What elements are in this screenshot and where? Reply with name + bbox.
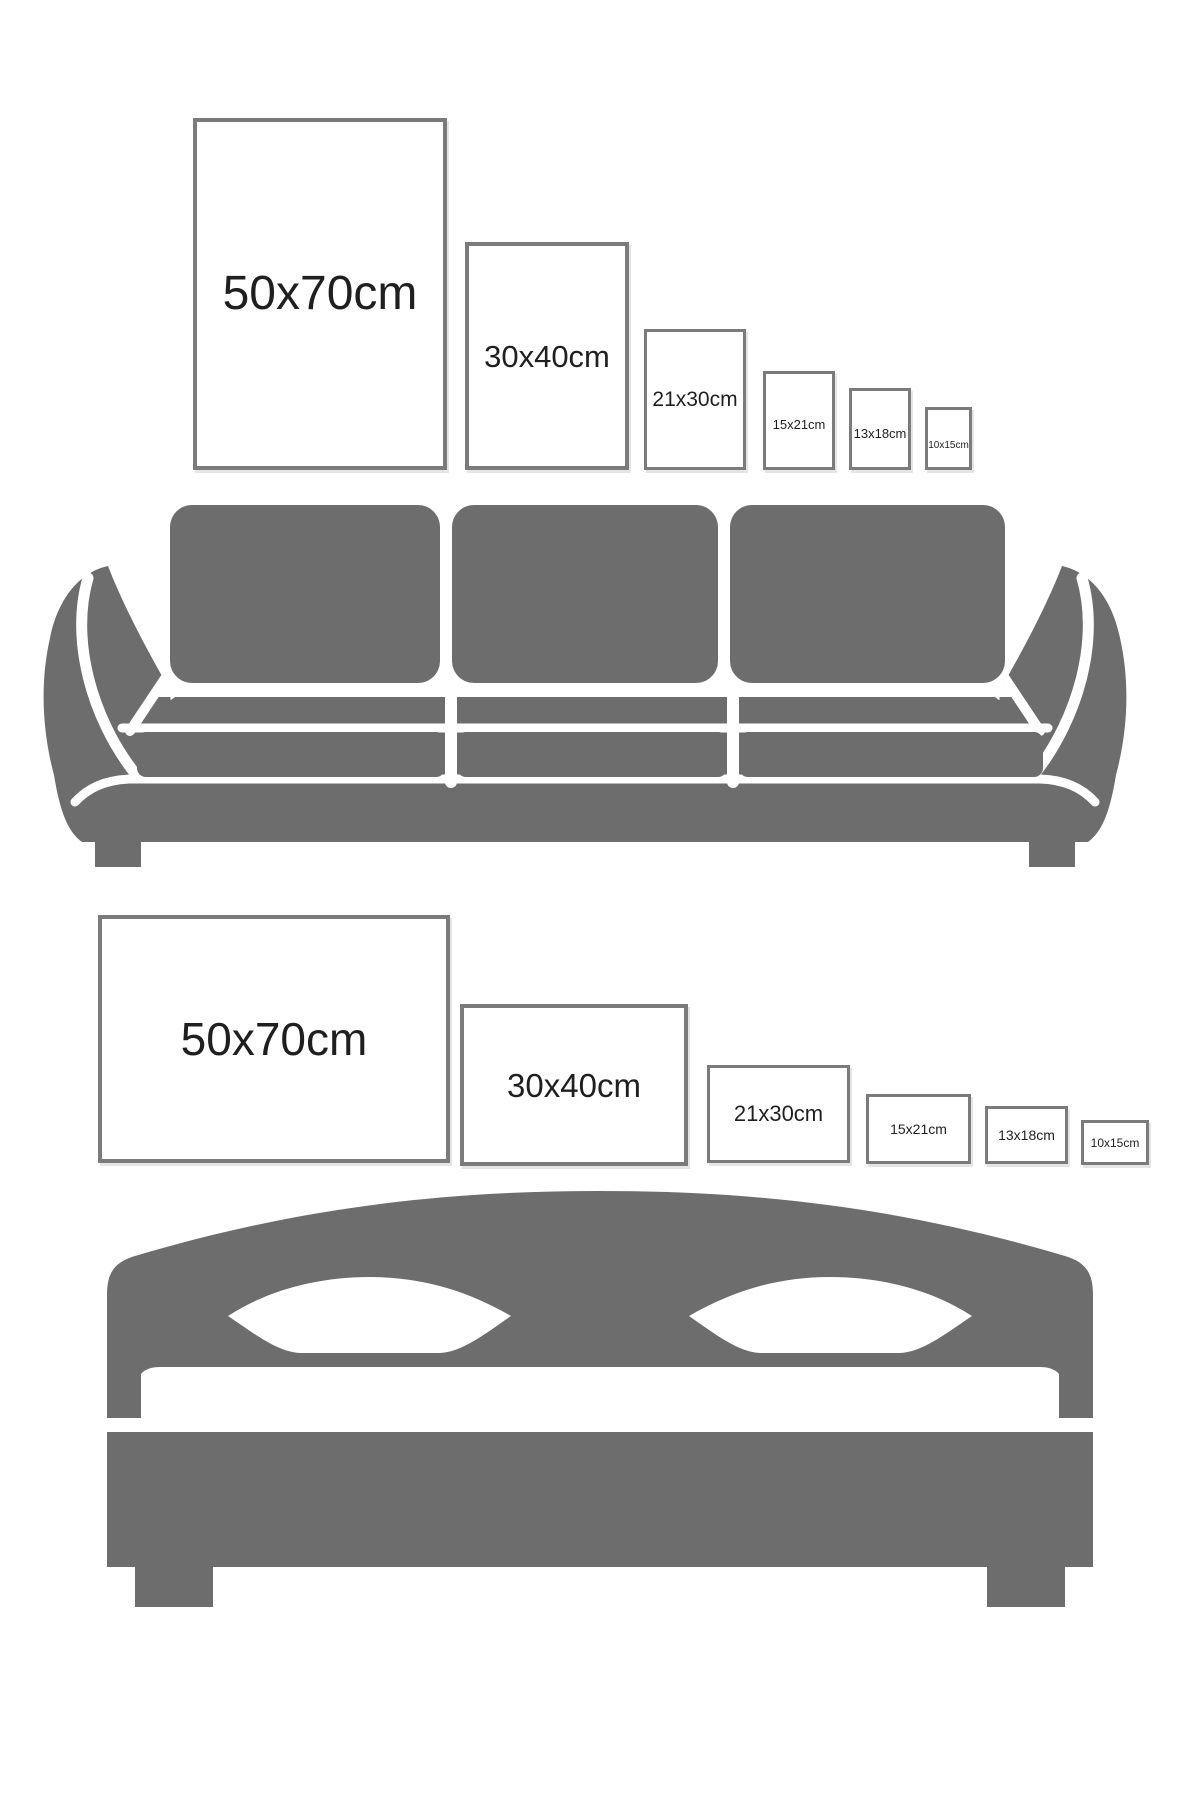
frame-label: 21x30cm	[734, 1103, 823, 1125]
frame-label: 50x70cm	[181, 1016, 368, 1062]
frame-label: 30x40cm	[484, 341, 610, 372]
frame-21x30-landscape: 21x30cm	[707, 1065, 850, 1163]
frame-label: 50x70cm	[223, 270, 418, 318]
frame-label: 13x18cm	[998, 1128, 1055, 1142]
frame-30x40-landscape: 30x40cm	[460, 1004, 688, 1166]
frame-label: 10x15cm	[1091, 1137, 1140, 1149]
frame-label: 15x21cm	[890, 1122, 947, 1136]
sofa-icon	[0, 440, 1200, 900]
frame-10x15-landscape: 10x15cm	[1081, 1120, 1149, 1165]
frame-label: 15x21cm	[773, 418, 826, 431]
frame-label: 13x18cm	[854, 427, 907, 440]
frame-15x21-landscape: 15x21cm	[866, 1094, 971, 1164]
size-guide-canvas: 50x70cm 30x40cm 21x30cm 15x21cm 13x18cm …	[0, 0, 1200, 1800]
bed-icon	[0, 1180, 1200, 1620]
frame-30x40-portrait: 30x40cm	[465, 242, 629, 470]
frame-50x70-portrait: 50x70cm	[193, 118, 447, 470]
frame-50x70-landscape: 50x70cm	[98, 915, 450, 1163]
frame-label: 21x30cm	[652, 389, 737, 410]
frame-label: 30x40cm	[507, 1069, 641, 1102]
frame-13x18-landscape: 13x18cm	[985, 1106, 1068, 1164]
